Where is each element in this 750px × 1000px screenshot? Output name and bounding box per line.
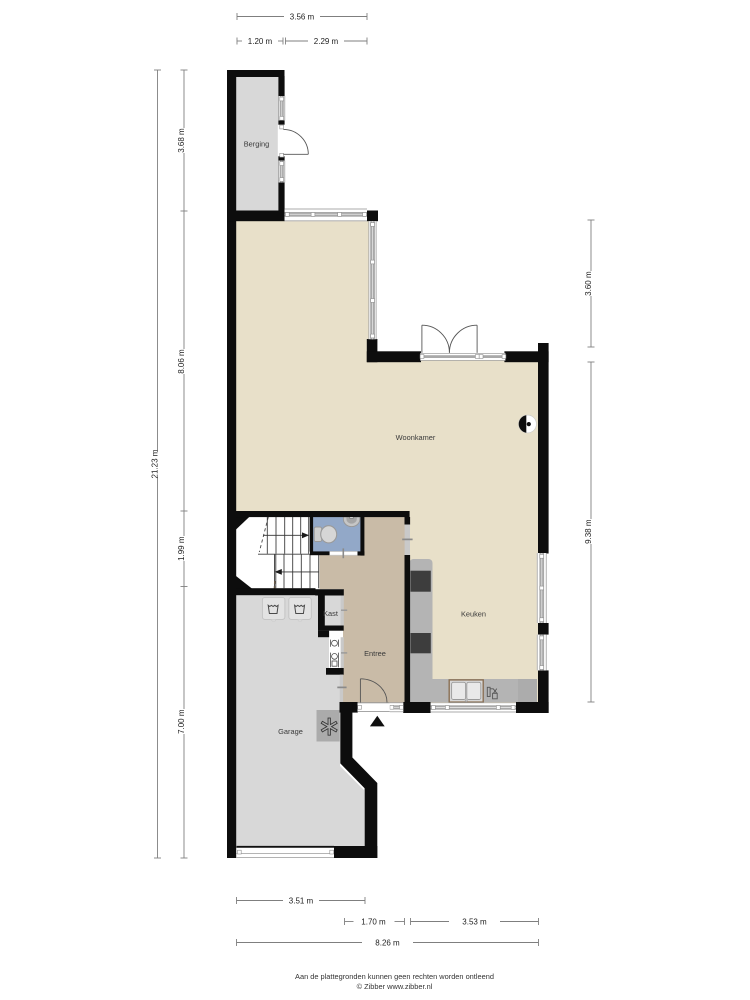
svg-text:Kast: Kast	[323, 609, 338, 618]
svg-text:7.00 m: 7.00 m	[177, 709, 186, 734]
svg-text:3.68 m: 3.68 m	[177, 128, 186, 153]
svg-text:Keuken: Keuken	[461, 609, 486, 618]
svg-text:9.38 m: 9.38 m	[584, 519, 593, 544]
svg-text:3.56 m: 3.56 m	[290, 12, 315, 21]
svg-text:Entree: Entree	[364, 649, 386, 658]
svg-text:8.06 m: 8.06 m	[177, 349, 186, 374]
svg-text:2.29 m: 2.29 m	[314, 37, 339, 46]
svg-text:Aan de plattegronden kunnen ge: Aan de plattegronden kunnen geen rechten…	[295, 972, 494, 981]
svg-text:Woonkamer: Woonkamer	[396, 433, 436, 442]
svg-text:1.70 m: 1.70 m	[361, 917, 386, 926]
svg-text:1.99 m: 1.99 m	[177, 536, 186, 561]
svg-text:3.51 m: 3.51 m	[289, 896, 314, 905]
svg-text:3.60 m: 3.60 m	[584, 271, 593, 296]
svg-text:Garage: Garage	[278, 727, 303, 736]
svg-text:1.20 m: 1.20 m	[248, 37, 273, 46]
svg-text:© Zibber www.zibber.nl: © Zibber www.zibber.nl	[357, 982, 433, 991]
svg-text:21.23 m: 21.23 m	[151, 449, 160, 478]
svg-text:Berging: Berging	[244, 140, 269, 149]
svg-text:3.53 m: 3.53 m	[462, 917, 487, 926]
svg-text:8.26 m: 8.26 m	[375, 938, 400, 947]
